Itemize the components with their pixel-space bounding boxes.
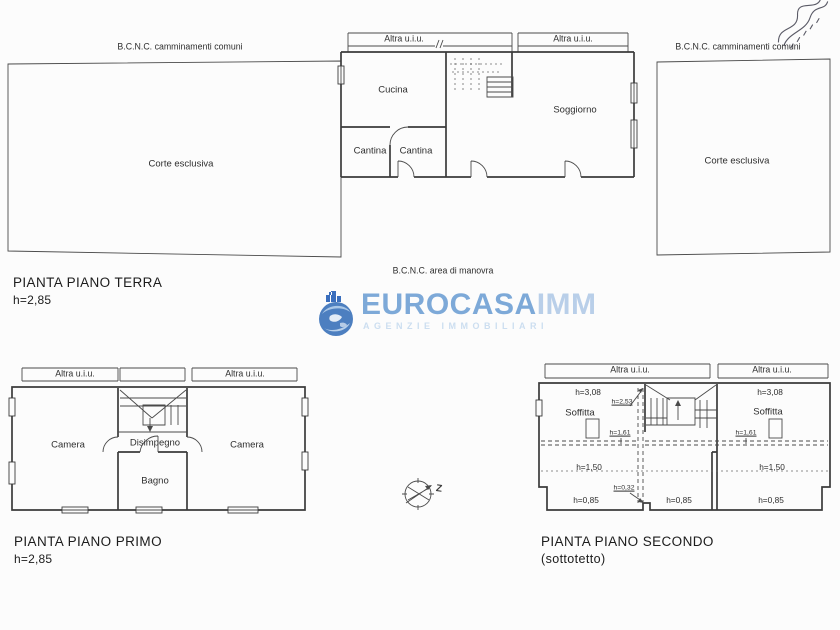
globe-icon <box>316 290 358 338</box>
marker-h308-left: h=3,08 <box>575 388 601 396</box>
second-floor-subtitle: (sottotetto) <box>541 553 606 566</box>
gf-unit-left-label: Altra u.i.u. <box>384 35 424 44</box>
north-arrow-icon <box>402 478 434 510</box>
court-left-label: Corte esclusiva <box>149 159 214 169</box>
ground-floor-height: h=2,85 <box>13 294 51 306</box>
room-attic-left-label: Soffitta <box>565 408 594 418</box>
marker-h085-left: h=0,85 <box>573 496 599 504</box>
first-floor-height: h=2,85 <box>14 553 52 565</box>
marker-h161-left: h=1,61 <box>610 431 631 438</box>
second-floor-title: PIANTA PIANO SECONDO <box>541 535 714 549</box>
floor-plan-document: B.C.N.C. camminamenti comuni B.C.N.C. ca… <box>0 0 840 630</box>
room-cellar2-label: Cantina <box>400 146 433 156</box>
bcnc-maneuver-label: B.C.N.C. area di manovra <box>393 267 494 276</box>
marker-h150-right: h=1,50 <box>759 463 785 471</box>
logo-text: EUROCASA IMM AGENZIE IMMOBILIARI <box>361 290 597 331</box>
logo-tagline: AGENZIE IMMOBILIARI <box>363 321 597 331</box>
room-attic-right-label: Soffitta <box>753 407 782 417</box>
gf-unit-right-label: Altra u.i.u. <box>553 35 593 44</box>
marker-h085-center: h=0,85 <box>666 496 692 504</box>
room-bedroom-left-label: Camera <box>51 440 85 450</box>
ff-unit-left-label: Altra u.i.u. <box>55 370 95 379</box>
logo-suffix: IMM <box>537 290 597 320</box>
logo-brand: EUROCASA <box>361 290 537 320</box>
room-bedroom-right-label: Camera <box>230 440 264 450</box>
marker-h161-right: h=1,61 <box>736 431 757 438</box>
bcnc-walkway-left-label: B.C.N.C. camminamenti comuni <box>117 43 242 52</box>
room-hallway-label: Disimpegno <box>130 438 180 448</box>
marker-h308-right: h=3,08 <box>757 388 783 396</box>
watermark-logo: EUROCASA IMM AGENZIE IMMOBILIARI <box>316 290 597 338</box>
ground-floor-title: PIANTA PIANO TERRA <box>13 276 162 290</box>
room-cellar1-label: Cantina <box>354 146 387 156</box>
room-living-label: Soggiorno <box>553 105 596 115</box>
first-floor-title: PIANTA PIANO PRIMO <box>14 535 162 549</box>
bcnc-walkway-right-label: B.C.N.C. camminamenti comuni <box>675 43 800 52</box>
room-bathroom-label: Bagno <box>141 476 168 486</box>
marker-h032: h=0,32 <box>614 486 635 493</box>
ff-unit-right-label: Altra u.i.u. <box>225 370 265 379</box>
sf-unit-left-label: Altra u.i.u. <box>610 366 650 375</box>
room-kitchen-label: Cucina <box>378 85 408 95</box>
marker-h253: h=2,53 <box>612 400 633 407</box>
marker-h085-right: h=0,85 <box>758 496 784 504</box>
sf-unit-right-label: Altra u.i.u. <box>752 366 792 375</box>
marker-h150-left: h=1,50 <box>576 463 602 471</box>
court-right-label: Corte esclusiva <box>705 156 770 166</box>
